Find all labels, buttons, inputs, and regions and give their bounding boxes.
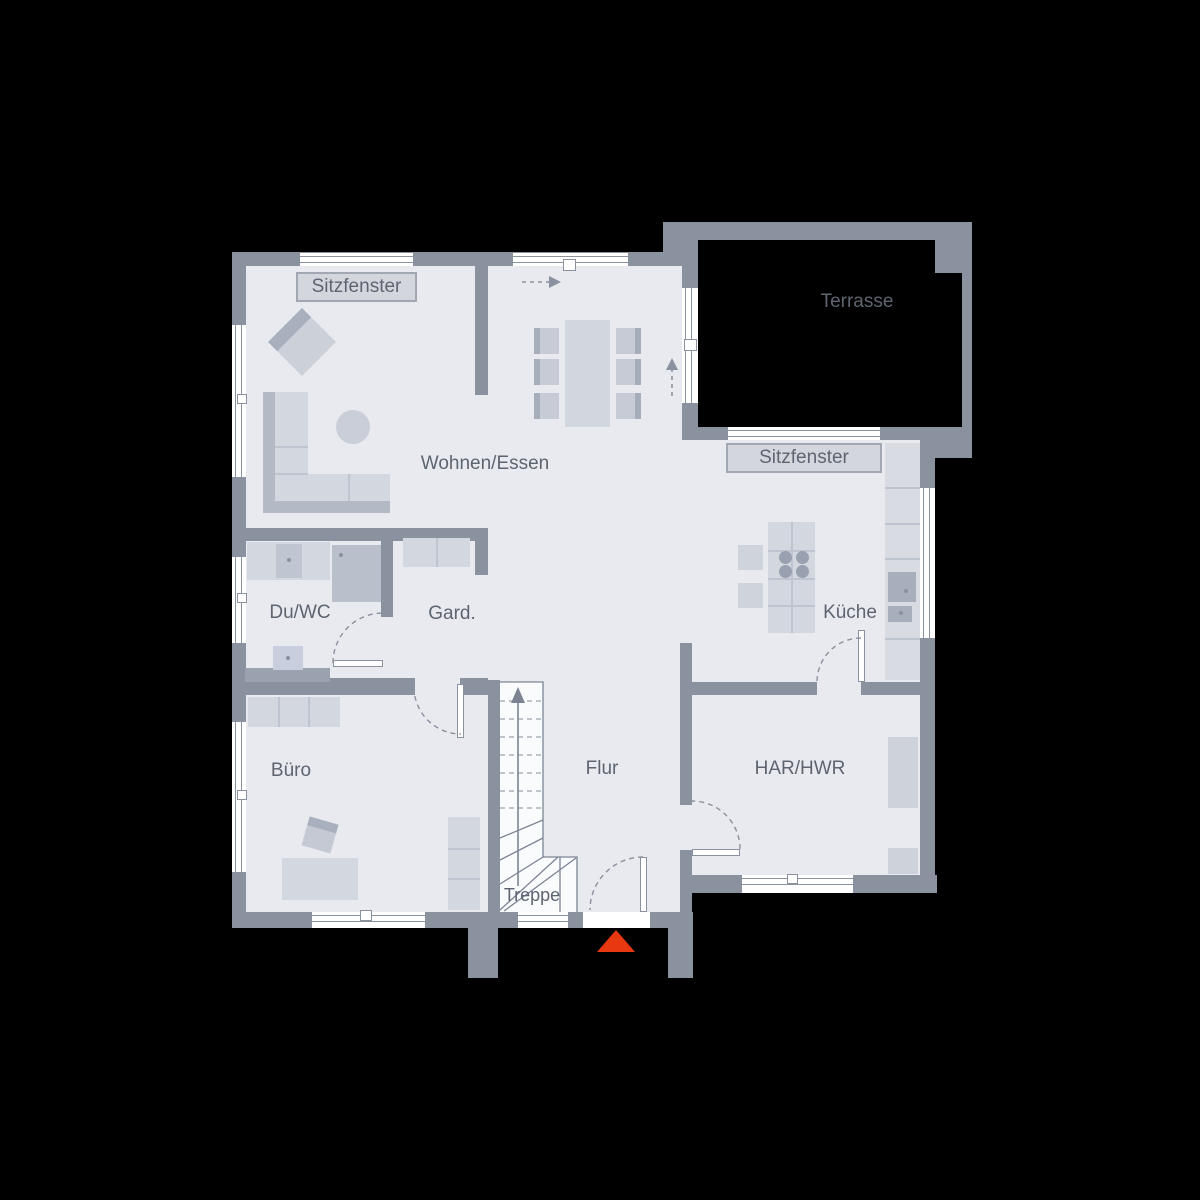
stair-flight (500, 682, 543, 912)
room-label-kitchen: Küche (800, 602, 900, 624)
room-label-hallway: Flur (552, 758, 652, 780)
floor-plan: Sitzfenster Sitzfenster Wohnen/Essen Ter… (0, 0, 1200, 1200)
room-label-wardrobe: Gard. (402, 603, 502, 625)
seat-window-label-kitchen: Sitzfenster (726, 443, 882, 473)
opening-arrows (522, 276, 678, 396)
room-label-terrace: Terrasse (787, 291, 927, 313)
seat-window-label-top: Sitzfenster (296, 272, 417, 302)
room-label-stairs: Treppe (482, 885, 582, 906)
window-slide-arrowhead (549, 276, 561, 288)
seat-window-label-text: Sitzfenster (312, 276, 402, 298)
seat-window-label-text: Sitzfenster (759, 447, 849, 469)
plan-linework (0, 0, 1200, 1200)
room-label-utility: HAR/HWR (725, 758, 875, 780)
terrace-door-arrowhead (666, 358, 678, 370)
room-label-living-dining: Wohnen/Essen (395, 453, 575, 475)
door-arc-office (414, 687, 461, 734)
entrance-marker-icon (597, 930, 635, 952)
room-label-office: Büro (241, 760, 341, 782)
door-arc-kitchen (817, 638, 861, 682)
room-label-shower-wc: Du/WC (250, 602, 350, 624)
door-arc-utility (692, 801, 740, 849)
staircase (500, 682, 577, 912)
door-arc-entrance (590, 857, 643, 910)
